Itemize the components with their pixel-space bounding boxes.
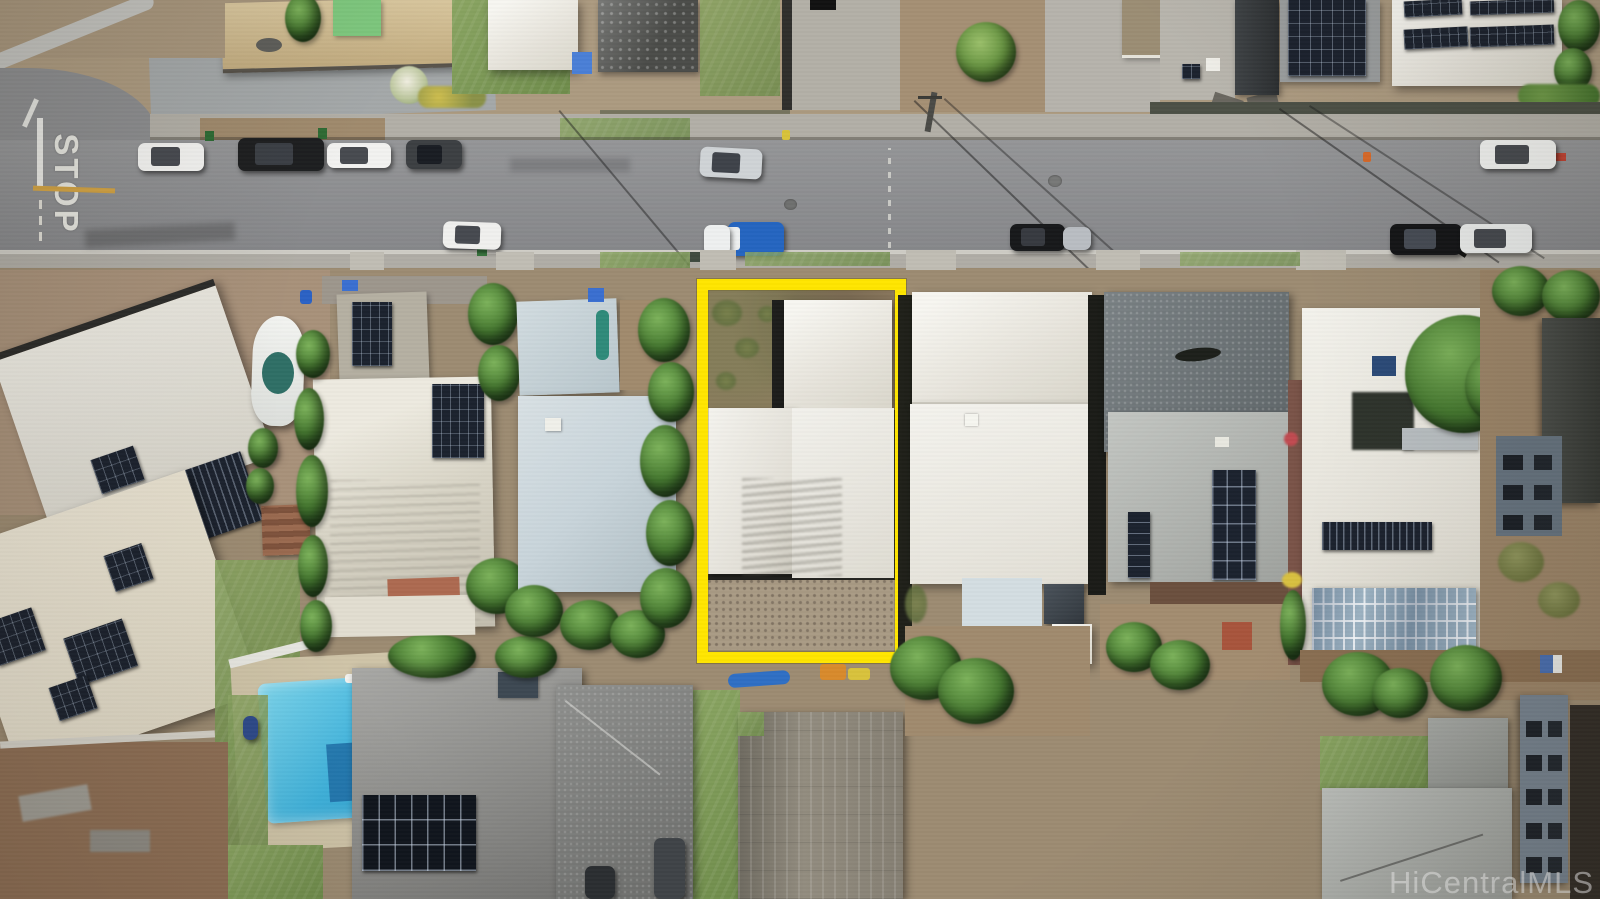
- lane-dash: [39, 200, 42, 209]
- tall-building-br: [1520, 695, 1568, 883]
- tree-hedge: [640, 425, 690, 497]
- bush-column: [296, 455, 328, 527]
- parked-car-dark: [585, 866, 615, 899]
- yellow-play-item: [848, 668, 870, 680]
- traffic-cone: [1363, 152, 1371, 162]
- grass-br: [1320, 736, 1428, 790]
- tree-topright: [1558, 0, 1600, 52]
- parked-car-white: [327, 143, 391, 168]
- solar-array: [1212, 470, 1256, 580]
- boat-cockpit-cover: [262, 352, 294, 394]
- parked-car-white: [138, 143, 204, 171]
- weathered-dark-roof-north: [598, 0, 698, 72]
- parked-suv-black: [1010, 224, 1065, 251]
- dirt-bottomleft: [0, 742, 228, 899]
- roof-seam-line: [912, 402, 1092, 404]
- solar-array: [63, 619, 138, 686]
- tree-E-backyard: [938, 658, 1014, 724]
- solar-array: [0, 607, 46, 666]
- step-notch-grass: [738, 712, 764, 736]
- tree-over-pool: [388, 634, 476, 678]
- gray-shed-roof-br: [1428, 718, 1508, 796]
- parked-pickup-white: [1480, 140, 1556, 169]
- tree-hedge: [646, 500, 694, 566]
- rubble-pile: [90, 830, 150, 852]
- backyard-grass-strip: [688, 690, 740, 899]
- wall-hedge-north: [1150, 102, 1600, 114]
- lane-dash: [39, 216, 42, 225]
- solar-array: [103, 543, 153, 592]
- blue-rooftop-items: [1372, 356, 1396, 376]
- red-shed-item: [1222, 622, 1252, 650]
- trash-bin: [318, 128, 327, 139]
- tree-hedge: [648, 362, 694, 422]
- highlighted-lot-outline: [697, 279, 906, 663]
- parked-car-silver: [699, 146, 762, 179]
- garden-greens: [905, 585, 927, 623]
- solar-strip-array: [1322, 522, 1432, 550]
- concrete-pad-north: [782, 0, 900, 110]
- palm-tree-north: [956, 22, 1016, 82]
- blue-tarp-small: [572, 52, 592, 74]
- orange-play-item: [820, 664, 846, 680]
- white-box-rooftop: [1206, 58, 1220, 71]
- dark-roof-strip-building: [1235, 0, 1279, 95]
- bush-column: [298, 535, 328, 597]
- tree-H-top: [1542, 270, 1600, 322]
- dark-shed: [1044, 584, 1084, 624]
- stop-bar-line: [37, 118, 43, 186]
- window-column: [1503, 442, 1523, 530]
- grass-pool-bottom: [228, 845, 323, 899]
- parkway-grass: [600, 252, 690, 268]
- driveway-apron: [1096, 250, 1140, 270]
- white-roof-E-main: [910, 404, 1092, 584]
- lane-dash: [39, 232, 42, 241]
- patio-north-right: [1160, 0, 1235, 100]
- parked-truck-black: [238, 138, 324, 171]
- driveway-apron: [496, 252, 534, 270]
- scrub-brush: [1498, 542, 1544, 582]
- skylight: [1215, 437, 1229, 447]
- parked-suv-black: [1390, 224, 1462, 255]
- dotted-crossing-line: [888, 148, 891, 248]
- white-roof-E-upper: [912, 292, 1092, 404]
- red-flowers: [1284, 432, 1298, 446]
- white-roof-north: [488, 0, 578, 70]
- driveway-apron: [350, 252, 384, 270]
- solar-array: [1404, 26, 1469, 49]
- tree: [478, 345, 520, 401]
- teal-canoe: [596, 310, 609, 360]
- dark-walkway-edge: [782, 0, 792, 110]
- curb-shadow-north: [150, 137, 1600, 140]
- bush: [246, 468, 274, 504]
- tree-br: [1430, 645, 1502, 711]
- blue-tarp: [342, 280, 358, 291]
- tree-D-bottom: [505, 585, 563, 637]
- manhole-cover: [256, 38, 282, 52]
- window-column: [1548, 703, 1562, 873]
- window-column: [1534, 442, 1552, 530]
- parked-car-dark: [406, 140, 462, 169]
- metal-roof-main: [518, 396, 676, 592]
- solar-array: [352, 302, 392, 366]
- blue-barrel: [300, 290, 312, 304]
- parked-truck-blue-cab: [728, 222, 784, 256]
- stop-road-marking: STOP: [44, 134, 88, 234]
- road-patch-dark: [510, 158, 630, 172]
- utility-pole-crossarm: [918, 96, 942, 99]
- parked-truck-white: [1460, 224, 1532, 253]
- tree-br: [1372, 668, 1428, 718]
- solar-array-dense: [1288, 0, 1366, 76]
- red-curb-mark: [1556, 153, 1566, 161]
- blue-tarp: [588, 288, 604, 302]
- skylight: [545, 418, 561, 431]
- manhole-cover: [1048, 175, 1062, 187]
- bush-column: [296, 330, 330, 378]
- parked-car-white-small: [443, 221, 502, 250]
- parked-van-dark: [654, 838, 685, 899]
- driveway-apron: [700, 250, 736, 270]
- parkway-grass: [1180, 252, 1300, 266]
- palm-F-backyard: [1150, 640, 1210, 690]
- driveway-apron: [906, 250, 956, 270]
- tree-over-pool: [495, 636, 557, 678]
- manhole-cover: [784, 199, 797, 210]
- bush-column: [300, 600, 332, 652]
- green-tarp-canopy: [333, 0, 381, 36]
- tree-hedge: [638, 298, 690, 362]
- brown-roof-strip: [1150, 582, 1290, 604]
- aerial-photo: STOP: [0, 0, 1600, 899]
- rooftop-grid-object: [810, 0, 836, 10]
- bluegray-roof-section: [962, 578, 1042, 626]
- lawn-north-2: [700, 0, 780, 96]
- yellow-flowers: [1282, 572, 1302, 588]
- tree-H-top: [1492, 266, 1550, 316]
- white-roof-extension: [325, 595, 476, 638]
- bush: [248, 428, 278, 468]
- car-in-yard: [243, 716, 258, 740]
- parkway-grass: [745, 252, 890, 266]
- blue-white-items-br: [1540, 655, 1562, 673]
- skylight: [965, 414, 978, 426]
- fire-hydrant-yellow: [782, 130, 790, 140]
- trash-bin: [205, 131, 214, 141]
- driveway-apron: [1296, 250, 1346, 270]
- window-column: [1526, 703, 1542, 873]
- solar-array: [1470, 25, 1555, 48]
- bluegray-two-story-house: [1496, 436, 1562, 536]
- solar-grid-3x7: [362, 795, 476, 871]
- solar-array: [1128, 512, 1150, 578]
- bush-column: [294, 388, 324, 450]
- small-solar-panel: [1182, 64, 1200, 79]
- glass-panel-array: [1312, 588, 1476, 656]
- solar-array: [432, 384, 484, 458]
- wood-shingle-roof-house: [738, 712, 903, 899]
- tree-hedge: [640, 568, 692, 628]
- watermark: HiCentralMLS: [1389, 865, 1594, 899]
- scrub-brush: [1538, 582, 1580, 618]
- solar-array: [1404, 0, 1463, 18]
- tree: [468, 283, 518, 345]
- parked-truck-silver: [1063, 227, 1091, 250]
